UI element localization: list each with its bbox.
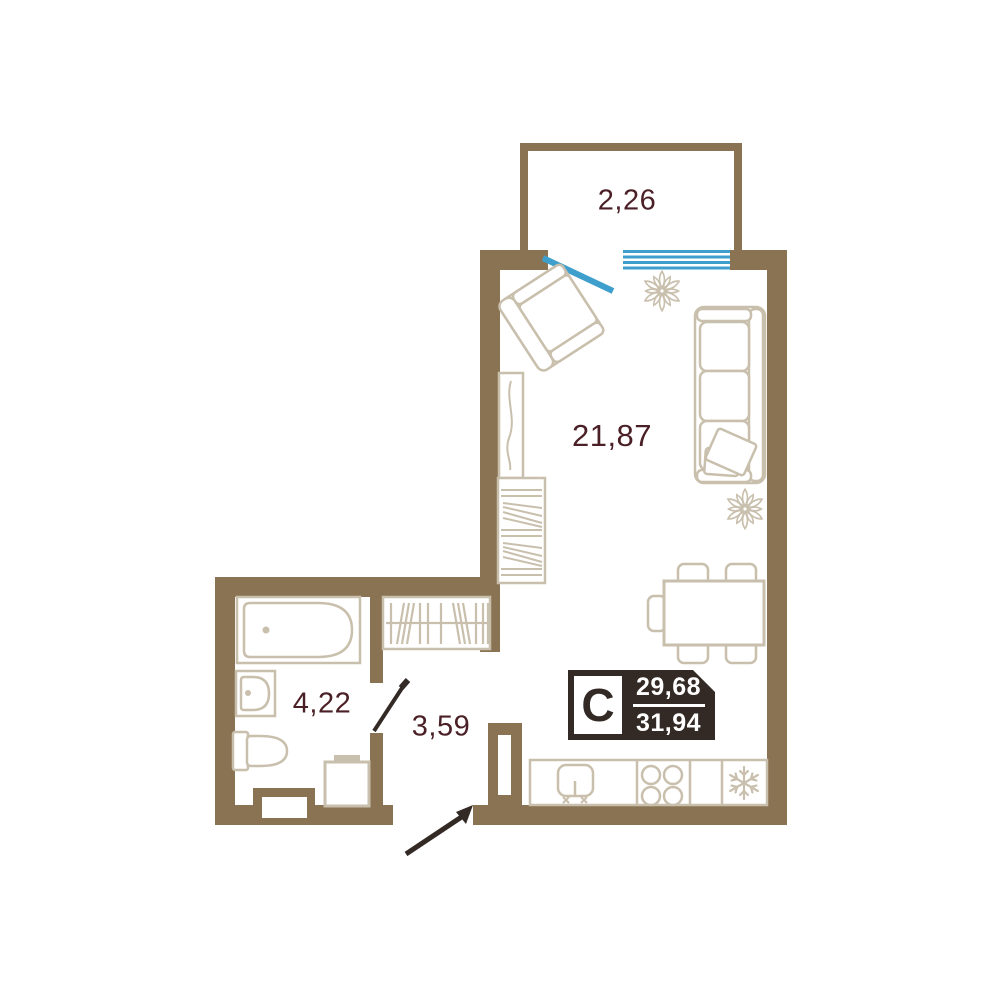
area-values: 29,68 31,94 — [626, 670, 711, 740]
tv-unit — [499, 373, 523, 478]
wall-balcony-left — [520, 143, 528, 258]
wall-main-right — [767, 250, 787, 825]
dining-table — [664, 581, 764, 645]
badge-divider — [633, 704, 705, 707]
washing-machine — [325, 755, 369, 806]
sink-faucet — [245, 690, 251, 696]
wardrobe — [498, 478, 545, 583]
wall-balcony-right — [734, 143, 742, 258]
room-label-hallway: 3,59 — [412, 711, 470, 744]
kitchen-counter — [530, 760, 767, 805]
shaft-opening — [262, 797, 307, 818]
doorframe-opening — [498, 735, 511, 795]
entrance-door-leaf — [406, 805, 473, 854]
wall-main-bottom — [473, 805, 787, 825]
bathroom-door-leaf — [374, 680, 408, 731]
wall-wing-left — [215, 577, 235, 825]
bathtub — [237, 597, 360, 663]
plant-icon — [644, 271, 681, 310]
apartment-type-box: С — [574, 676, 622, 734]
dining-set — [648, 564, 764, 663]
room-label-bathroom: 4,22 — [293, 688, 351, 721]
room-label-balcony: 2,26 — [598, 185, 656, 218]
floor-plan-drawing — [0, 0, 1000, 1000]
sofa — [695, 307, 765, 483]
plant-icon — [727, 489, 764, 528]
bathroom-sink — [236, 671, 275, 716]
bathtub-drain — [263, 627, 270, 634]
wall-bath-partition-lower — [370, 733, 383, 805]
area-badge: С 29,68 31,94 — [568, 670, 715, 740]
total-area-value: 31,94 — [636, 711, 701, 736]
wall-balcony-top — [520, 143, 742, 151]
wall-wing-top — [215, 577, 500, 597]
apartment-type-letter: С — [581, 682, 614, 728]
window-balcony — [623, 250, 730, 270]
room-label-living: 21,87 — [572, 418, 652, 454]
living-area-value: 29,68 — [636, 675, 701, 700]
hanger-rack-icon — [383, 597, 490, 649]
toilet — [233, 732, 287, 770]
floor-plan: 2,26 21,87 4,22 3,59 С 29,68 31,94 — [0, 0, 1000, 1000]
wall-bath-partition-upper — [370, 597, 383, 683]
